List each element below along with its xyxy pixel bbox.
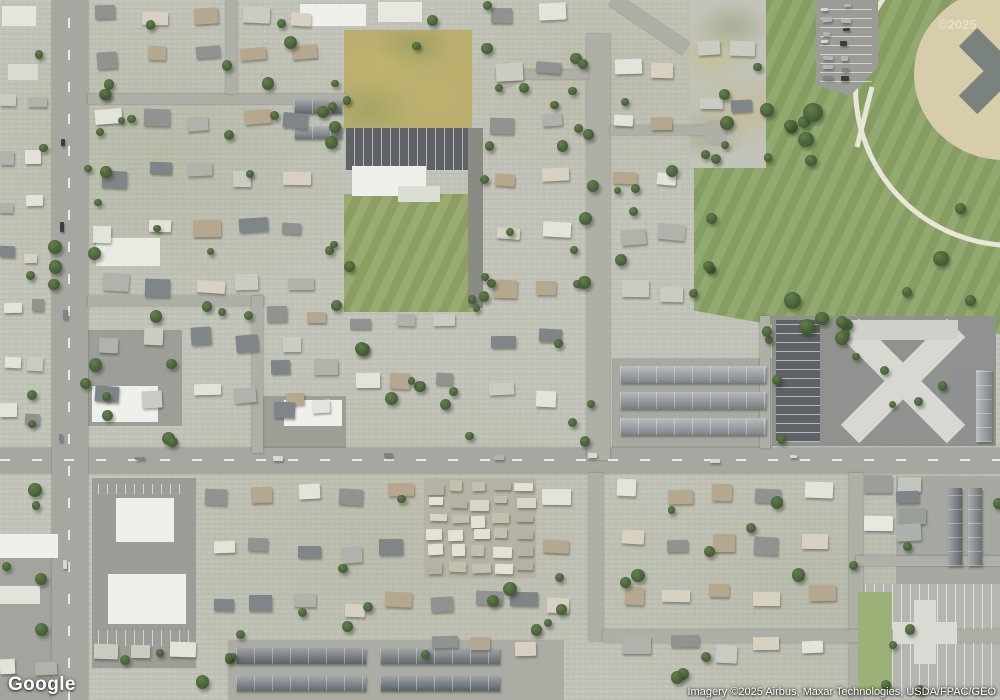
tree — [631, 569, 644, 582]
car — [60, 222, 64, 232]
mobile-home — [494, 496, 507, 503]
tree — [331, 80, 338, 87]
house — [433, 314, 455, 326]
senior-parking — [776, 320, 820, 442]
mobile-home — [517, 530, 533, 539]
house — [651, 62, 673, 78]
house — [0, 403, 17, 417]
tree — [771, 496, 783, 508]
car — [823, 65, 833, 70]
tree — [218, 308, 227, 317]
tree — [629, 207, 638, 216]
house — [294, 593, 316, 607]
tree — [762, 326, 772, 336]
road-center-south — [589, 473, 603, 641]
house — [355, 373, 379, 388]
house — [95, 5, 115, 20]
tree — [330, 241, 337, 248]
tree — [207, 248, 215, 256]
mobile-home — [472, 563, 491, 572]
house — [271, 360, 290, 374]
road-diagonal — [609, 0, 690, 54]
tree — [88, 247, 101, 260]
tree — [815, 312, 829, 326]
tree — [580, 436, 590, 446]
house — [150, 161, 172, 174]
car — [841, 56, 848, 61]
tree — [765, 336, 773, 344]
car — [59, 434, 63, 442]
house — [94, 643, 118, 659]
tree — [905, 624, 915, 634]
apartment-row — [236, 648, 366, 664]
house — [384, 592, 411, 608]
tree — [102, 392, 111, 401]
tree — [412, 42, 421, 51]
townhome-row — [620, 366, 766, 383]
tree — [96, 128, 104, 136]
satellite-map-canvas[interactable] — [0, 0, 1000, 700]
car — [840, 41, 847, 46]
tree — [479, 291, 490, 302]
house — [238, 217, 267, 233]
car — [841, 19, 851, 24]
tree — [325, 136, 338, 149]
tree — [753, 63, 761, 71]
house — [379, 539, 403, 555]
tree — [764, 153, 773, 162]
house — [864, 475, 892, 494]
google-logo[interactable]: Google — [8, 674, 76, 696]
tree — [427, 15, 438, 26]
house — [0, 203, 13, 213]
tree — [852, 353, 859, 360]
mobile-home — [452, 515, 470, 523]
house — [536, 281, 556, 295]
house — [349, 318, 370, 329]
house — [713, 534, 735, 552]
tree — [760, 103, 774, 117]
house — [495, 63, 523, 82]
house — [622, 636, 651, 654]
tree — [835, 331, 849, 345]
house — [489, 382, 515, 395]
house — [621, 229, 647, 246]
house — [251, 487, 272, 504]
tree — [48, 279, 59, 290]
mobile-home — [492, 513, 509, 523]
tree — [343, 96, 352, 105]
house — [491, 336, 516, 348]
house — [622, 280, 649, 297]
mobile-home — [448, 530, 463, 542]
house — [659, 286, 682, 302]
house — [281, 222, 300, 235]
tree — [270, 111, 279, 120]
house — [617, 479, 637, 497]
townhome-row — [620, 418, 766, 435]
mobile-home — [494, 482, 511, 491]
house — [214, 540, 236, 553]
tree — [993, 498, 1000, 508]
house — [144, 279, 169, 297]
tree — [166, 359, 176, 369]
mobile-home — [495, 563, 514, 574]
house — [345, 604, 365, 618]
house — [24, 254, 37, 263]
tree — [222, 60, 232, 70]
tree — [465, 432, 473, 440]
mobile-home — [474, 529, 490, 539]
tree — [224, 130, 234, 140]
tree — [146, 20, 155, 29]
tree — [127, 115, 135, 123]
bigbox-store — [108, 574, 186, 624]
house — [248, 594, 271, 611]
tree — [414, 381, 425, 392]
house — [542, 488, 571, 504]
tree — [579, 212, 592, 225]
mobile-home — [449, 562, 466, 572]
tree — [933, 251, 948, 266]
tree — [568, 87, 577, 96]
mobile-home — [517, 498, 536, 508]
house — [148, 45, 167, 60]
car — [62, 560, 66, 569]
tree — [614, 187, 621, 194]
mobile-home — [471, 515, 485, 527]
tree — [196, 675, 210, 689]
house — [99, 337, 119, 352]
tree — [100, 166, 112, 178]
tree — [397, 495, 406, 504]
school-field-south — [344, 194, 476, 312]
house — [431, 596, 453, 613]
tree — [550, 101, 558, 109]
tree — [244, 311, 253, 320]
house — [753, 591, 780, 605]
tree — [506, 228, 514, 236]
tree — [805, 155, 817, 167]
tree — [570, 246, 578, 254]
tree — [701, 150, 710, 159]
house — [541, 113, 562, 127]
tree — [2, 562, 11, 571]
house — [197, 280, 226, 294]
imagery-watermark: ©2025 — [938, 17, 977, 32]
tree — [118, 117, 125, 124]
tree — [356, 343, 370, 357]
house — [314, 359, 338, 375]
car — [494, 455, 504, 460]
mobile-home — [472, 482, 486, 491]
house — [292, 44, 318, 60]
house — [288, 278, 314, 290]
house — [753, 536, 778, 555]
tree — [701, 652, 711, 662]
tree — [89, 358, 103, 372]
house — [864, 515, 893, 531]
house — [698, 41, 721, 57]
tree — [578, 276, 591, 289]
house — [802, 534, 828, 549]
car — [63, 310, 68, 319]
house — [28, 97, 47, 107]
house — [0, 151, 14, 165]
house — [899, 508, 926, 524]
tree — [298, 608, 307, 617]
tree — [554, 339, 563, 348]
house — [25, 150, 41, 164]
house — [896, 524, 922, 542]
house — [193, 8, 218, 26]
house — [700, 98, 723, 109]
house — [312, 400, 330, 414]
house — [341, 547, 362, 564]
mobile-home — [429, 497, 443, 505]
house — [536, 390, 557, 407]
house — [491, 7, 512, 22]
house — [0, 659, 16, 675]
senior-building-wing — [846, 320, 958, 340]
house — [190, 326, 211, 345]
car — [842, 68, 849, 72]
tree — [574, 124, 583, 133]
tree — [668, 506, 676, 514]
tree — [620, 577, 631, 588]
tree — [440, 399, 451, 410]
house — [243, 7, 271, 24]
house — [283, 172, 311, 186]
tree — [902, 287, 912, 297]
tree — [481, 43, 492, 54]
mobile-home — [426, 529, 442, 540]
tree — [468, 295, 477, 304]
house — [804, 482, 833, 499]
tree — [784, 292, 801, 309]
tree — [84, 165, 91, 172]
road-minor — [226, 0, 237, 94]
tree — [449, 387, 458, 396]
house — [494, 173, 515, 186]
house — [186, 117, 208, 132]
tree — [631, 184, 640, 193]
tree — [531, 624, 542, 635]
tree — [421, 650, 430, 659]
house — [624, 586, 644, 605]
house — [170, 642, 196, 657]
road-minor — [88, 296, 264, 306]
tree — [519, 83, 529, 93]
tree — [202, 301, 213, 312]
tree — [344, 261, 355, 272]
car — [821, 8, 828, 12]
school-parking — [345, 128, 471, 170]
house — [131, 645, 150, 659]
house — [470, 637, 491, 650]
house — [282, 112, 309, 129]
tree — [94, 199, 101, 206]
house — [26, 195, 43, 207]
house — [144, 109, 170, 126]
tree — [666, 165, 678, 177]
house — [234, 387, 257, 404]
lane-line — [68, 0, 70, 700]
tree — [236, 630, 245, 639]
commercial-building — [0, 534, 58, 558]
car — [823, 76, 833, 80]
tree — [746, 523, 757, 534]
house — [613, 172, 638, 185]
house — [240, 47, 267, 61]
tree — [689, 289, 698, 298]
tree — [583, 129, 594, 140]
tree — [849, 561, 858, 570]
tree — [480, 175, 489, 184]
tree — [473, 304, 480, 311]
house — [543, 540, 570, 554]
mobile-home — [427, 544, 442, 556]
house — [142, 391, 163, 409]
tree — [704, 546, 715, 557]
tree — [225, 653, 233, 661]
house — [0, 94, 16, 106]
tree — [568, 418, 577, 427]
tree — [35, 573, 47, 585]
store-lot-stalls — [98, 484, 188, 494]
house — [193, 384, 220, 396]
tree — [342, 621, 353, 632]
house — [235, 334, 259, 353]
house — [896, 491, 919, 504]
house — [27, 357, 44, 372]
house — [397, 313, 416, 326]
apartment-row — [976, 370, 992, 442]
house — [32, 299, 44, 311]
road-center-ns — [587, 34, 610, 460]
map-viewport: ©2025 Google Imagery ©2025 Airbus, Maxar… — [0, 0, 1000, 700]
tree — [903, 542, 912, 551]
house — [436, 373, 453, 386]
house — [666, 540, 688, 553]
tree — [799, 319, 815, 335]
house — [0, 246, 15, 258]
tree — [150, 310, 163, 323]
house — [4, 303, 22, 314]
church-building — [914, 600, 936, 664]
commercial-building — [2, 6, 36, 26]
map-attribution: Imagery ©2025 Airbus, Maxar Technologies… — [688, 686, 997, 698]
house — [542, 221, 571, 237]
house — [671, 635, 699, 647]
mobile-home — [452, 544, 465, 556]
tree — [719, 89, 729, 99]
mobile-home — [493, 528, 507, 539]
house — [244, 109, 272, 125]
mobile-home — [517, 545, 533, 556]
house — [248, 538, 269, 552]
tree — [938, 381, 948, 391]
house — [753, 637, 779, 651]
house — [668, 489, 693, 504]
car — [822, 17, 832, 23]
mobile-home — [427, 562, 441, 574]
tree — [615, 254, 627, 266]
mobile-home — [427, 483, 444, 494]
house — [432, 636, 458, 649]
house — [290, 12, 310, 26]
road-left-ns — [52, 0, 88, 700]
car — [588, 453, 597, 458]
apartment-row — [948, 488, 962, 566]
tree — [556, 604, 567, 615]
tree — [167, 437, 177, 447]
tree — [101, 89, 111, 99]
tree — [487, 595, 499, 607]
tree — [481, 273, 489, 281]
tree — [39, 144, 47, 152]
tree — [35, 50, 44, 59]
house — [715, 644, 737, 663]
tree — [706, 213, 717, 224]
tree — [557, 140, 568, 151]
tree — [317, 106, 329, 118]
house — [731, 99, 753, 112]
townhome-row — [620, 392, 766, 409]
house — [730, 41, 756, 56]
mobile-home — [450, 480, 463, 491]
house — [802, 640, 824, 653]
commercial-building — [8, 64, 38, 80]
house — [35, 661, 57, 675]
tree — [156, 649, 163, 656]
tree — [246, 170, 254, 178]
tree — [49, 260, 62, 273]
mobile-home — [515, 561, 532, 570]
school-building-wing — [398, 186, 440, 202]
tree — [328, 102, 337, 111]
mobile-home — [470, 500, 489, 511]
house — [651, 116, 673, 129]
house — [196, 45, 221, 59]
tree — [27, 390, 37, 400]
tree — [32, 501, 41, 510]
house — [235, 274, 259, 291]
tree — [495, 84, 504, 93]
house — [5, 357, 21, 368]
tree — [544, 619, 553, 628]
house — [298, 484, 320, 500]
house — [489, 118, 513, 135]
house — [539, 2, 567, 20]
mobile-home — [493, 547, 512, 558]
house — [614, 114, 634, 126]
house — [622, 530, 644, 545]
mobile-home — [514, 483, 533, 491]
house — [298, 546, 321, 558]
car — [841, 76, 849, 81]
house — [96, 51, 117, 69]
house — [205, 488, 228, 505]
mobile-home — [451, 499, 468, 508]
house — [193, 220, 221, 237]
tree — [803, 103, 823, 123]
house — [214, 599, 235, 612]
house — [283, 337, 301, 352]
apartment-row — [380, 676, 500, 691]
apartment-row — [380, 648, 500, 664]
house — [143, 327, 163, 345]
